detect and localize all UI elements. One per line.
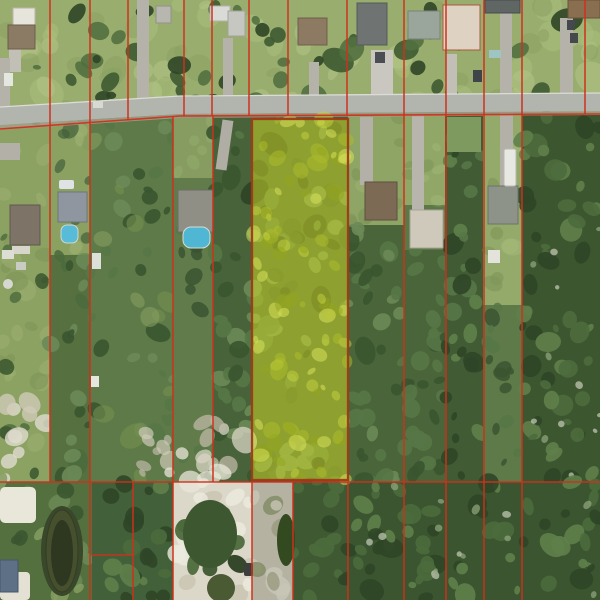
- driveway: [9, 48, 21, 72]
- aerial-parcel-map[interactable]: [0, 0, 600, 600]
- house-b-east: [228, 11, 245, 36]
- driveway: [0, 143, 20, 160]
- car: [4, 73, 13, 86]
- rv: [504, 149, 516, 186]
- driveway: [412, 114, 424, 212]
- trailer: [488, 250, 500, 263]
- house-j: [365, 182, 397, 220]
- sand-pad: [0, 487, 36, 523]
- trailer: [92, 253, 101, 269]
- clutter: [3, 279, 13, 289]
- shed-top: [156, 6, 171, 23]
- driveway: [500, 13, 512, 95]
- house-k: [410, 210, 443, 248]
- house-l: [488, 186, 518, 224]
- house-f: [568, 0, 600, 18]
- house-a: [8, 25, 35, 49]
- driveway: [446, 54, 457, 99]
- house-b-west: [210, 6, 230, 21]
- car: [489, 50, 501, 58]
- house-g: [10, 205, 40, 245]
- shed-blue: [0, 560, 18, 592]
- highlighted-parcel[interactable]: [244, 111, 357, 487]
- car: [473, 70, 482, 82]
- house-c1: [298, 18, 327, 45]
- map-canvas[interactable]: [0, 0, 600, 600]
- house-h: [58, 192, 87, 222]
- boat: [59, 180, 74, 189]
- house-d: [443, 5, 480, 50]
- house-e: [485, 0, 520, 13]
- car: [93, 101, 103, 108]
- clutter: [16, 262, 26, 270]
- pool: [61, 225, 78, 243]
- car: [570, 33, 578, 43]
- car: [375, 52, 385, 63]
- house-c: [357, 3, 387, 45]
- pool: [183, 227, 210, 248]
- driveway: [223, 38, 233, 100]
- house-garage-a: [13, 8, 35, 26]
- driveway: [309, 62, 319, 100]
- pond-center: [51, 520, 73, 586]
- car: [567, 20, 575, 30]
- deck: [12, 246, 30, 254]
- van: [91, 376, 99, 387]
- driveway: [360, 117, 373, 185]
- house-c2: [408, 11, 440, 39]
- tree-cluster: [183, 500, 237, 568]
- clutter: [2, 250, 14, 259]
- house-i: [178, 190, 213, 232]
- driveway: [137, 0, 149, 100]
